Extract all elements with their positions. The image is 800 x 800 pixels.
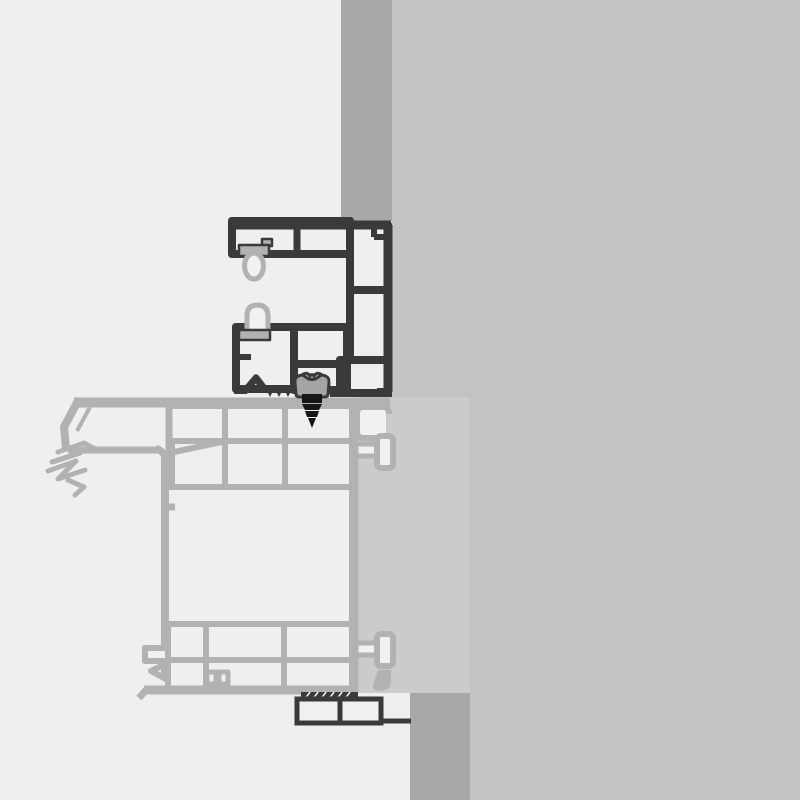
- gasket-lower: [247, 305, 268, 329]
- cross-section-drawing: [0, 0, 800, 800]
- screw-head: [295, 373, 329, 397]
- wall-reveal-strip-top: [341, 0, 392, 221]
- gasket-upper: [245, 253, 264, 279]
- thermal-break-lower: [377, 634, 393, 666]
- gasket-carrier-lower: [239, 330, 270, 340]
- thermal-break-upper: [377, 436, 393, 468]
- wall-reveal-strip-bottom: [410, 693, 470, 800]
- screw-neck: [302, 394, 322, 403]
- cad-drawing-canvas: [0, 0, 800, 800]
